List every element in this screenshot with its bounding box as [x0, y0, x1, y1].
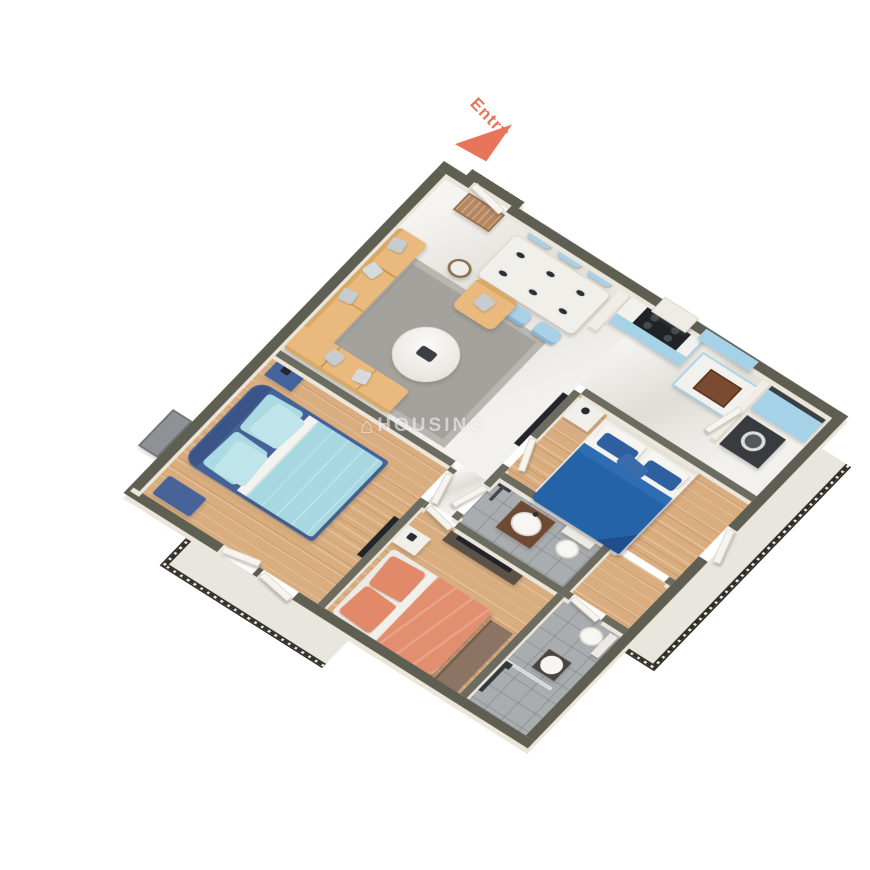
house-icon: ⌂: [360, 413, 373, 439]
watermark-text: HOUSING: [377, 415, 487, 437]
housing-watermark: ⌂ HOUSING: [360, 413, 487, 439]
entry-marker: Entry: [448, 92, 568, 172]
floorplan-stage: ⌂ HOUSING Entry: [0, 0, 870, 870]
